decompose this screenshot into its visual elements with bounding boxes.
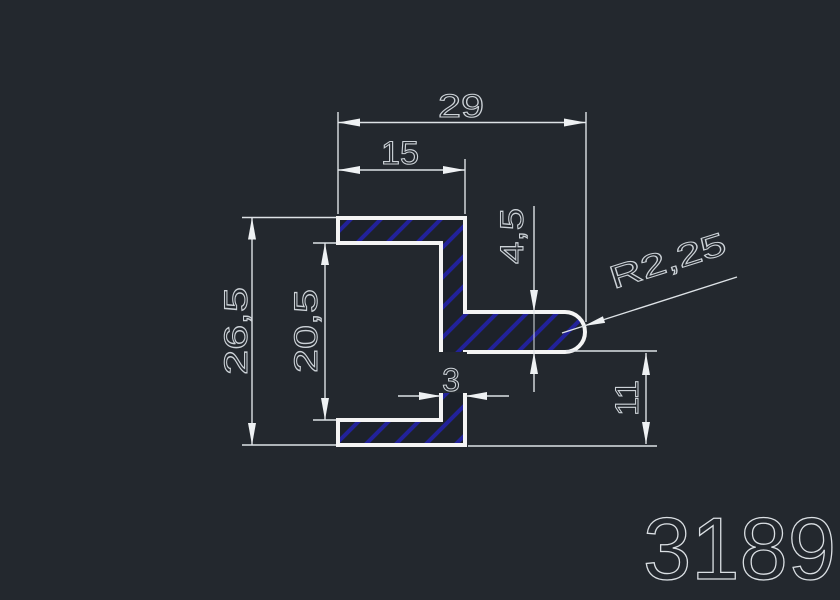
part-number: 3189 xyxy=(643,499,836,598)
dim-overall-height-label: 26,5 xyxy=(218,287,254,375)
dim-web-thickness-label: 3 xyxy=(442,362,460,398)
dim-stub-thickness-label: 4,5 xyxy=(494,208,530,264)
dim-flange-width-label: 15 xyxy=(381,135,419,171)
dim-inner-height-label: 20,5 xyxy=(288,289,324,373)
dim-overall-width-label: 29 xyxy=(438,88,484,124)
drawing-svg: 29 15 26,5 20,5 4,5 xyxy=(0,0,840,600)
dim-bottom-offset-label: 11 xyxy=(609,380,645,416)
cad-canvas: 29 15 26,5 20,5 4,5 xyxy=(0,0,840,600)
